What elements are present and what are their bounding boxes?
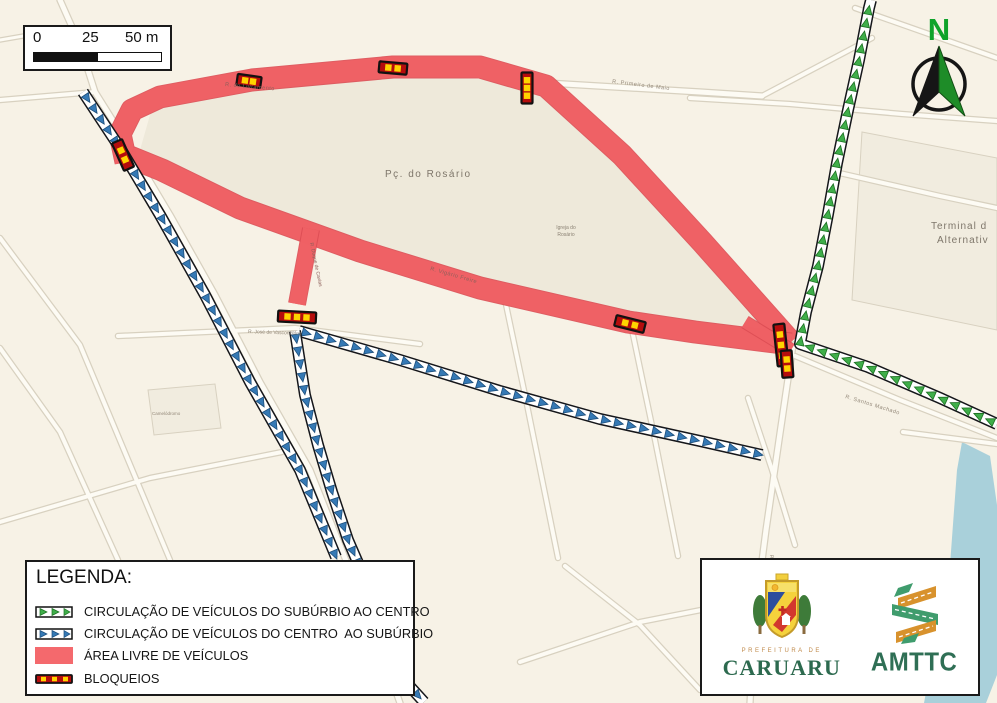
legend-item-label: CIRCULAÇÃO DE VEÍCULOS DO SUBÚRBIO AO CE… [84, 604, 430, 619]
caruaru-brand: PREFEITURA DE CARUARU [723, 573, 841, 681]
amttc-logo-icon [886, 578, 942, 644]
amttc-wordmark: AMTTC [871, 647, 957, 677]
caruaru-coat-of-arms-icon [752, 573, 812, 645]
map-label: Rosário [557, 232, 574, 238]
legend-title: LEGENDA: [36, 567, 132, 589]
blockade-marker [278, 311, 317, 324]
scale-bar-filled-segment [34, 53, 98, 61]
legend-item-suburb-to-center: CIRCULAÇÃO DE VEÍCULOS DO SUBÚRBIO AO CE… [35, 604, 430, 619]
scale-label-0: 0 [33, 29, 41, 46]
legend-box: LEGENDA: CIRCULAÇÃO DE VEÍCULOS DO SUBÚR… [25, 560, 415, 696]
blockade-marker [379, 61, 408, 74]
city-block [148, 384, 221, 435]
street-casing [0, 348, 118, 560]
map-label: Camelódromo [152, 411, 181, 416]
scale-bar-segments [33, 52, 162, 62]
legend-item-center-to-suburb: CIRCULAÇÃO DE VEÍCULOS DO CENTRO AO SUBÚ… [35, 626, 433, 641]
map-label: Igreja do [556, 225, 576, 231]
street-road [632, 330, 678, 556]
street-casing [565, 566, 700, 690]
legend-item-label: CIRCULAÇÃO DE VEÍCULOS DO CENTRO AO SUBÚ… [84, 626, 433, 641]
north-arrow: N [898, 4, 980, 120]
scale-bar: 0 25 50 m [23, 25, 172, 71]
prefeitura-label: PREFEITURA DE [742, 648, 822, 654]
map-label: Pç. do Rosário [385, 169, 472, 180]
blockade-marker [781, 350, 794, 378]
map-label: Alternativ [937, 235, 989, 246]
legend-item-blockades: BLOQUEIOS [35, 671, 159, 686]
legend-item-label: ÁREA LIVRE DE VEÍCULOS [84, 648, 248, 663]
logo-box: PREFEITURA DE CARUARU AMTTC [700, 558, 980, 696]
blockade-marker [522, 73, 533, 104]
green-arrows-symbol-icon [35, 606, 73, 618]
map-label: Terminal d [931, 221, 987, 232]
legend-item-vehicle-free-area: ÁREA LIVRE DE VEÍCULOS [35, 647, 248, 664]
map-label: R. José de Vasconcelos [248, 329, 302, 337]
map-page: Pç. do RosárioIgreja doRosárioTerminal d… [0, 0, 997, 703]
north-arrow-icon: N [898, 4, 980, 120]
street-road [795, 356, 997, 438]
amttc-brand: AMTTC [871, 578, 957, 677]
scale-label-25: 25 [82, 29, 99, 46]
red-area-symbol-icon [35, 647, 73, 664]
blue-arrows-symbol-icon [35, 628, 73, 640]
caruaru-wordmark: CARUARU [723, 655, 841, 681]
scale-label-50: 50 m [125, 29, 158, 46]
street-road [505, 300, 558, 558]
street-road [748, 398, 795, 545]
legend-item-label: BLOQUEIOS [84, 671, 159, 686]
north-label: N [928, 12, 950, 47]
blockade-symbol-icon [35, 673, 73, 685]
